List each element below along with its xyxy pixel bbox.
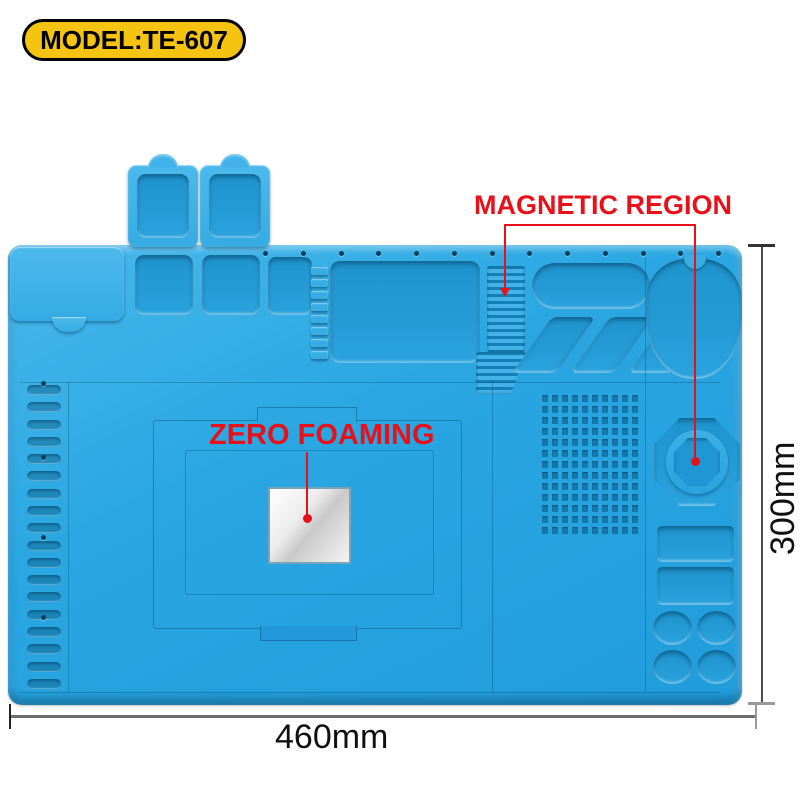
grid-dot (592, 505, 598, 512)
slot (27, 644, 61, 654)
grid-dot (542, 395, 548, 402)
grid-dot (572, 527, 578, 534)
grid-dot (552, 516, 558, 523)
mat-hole (41, 455, 46, 460)
grid-dot (572, 406, 578, 413)
slot (27, 575, 61, 585)
grid-dot (592, 450, 598, 457)
magnetic-bracket-line (505, 224, 696, 226)
hole (376, 251, 381, 256)
hole (527, 251, 532, 256)
grid-dot (562, 472, 568, 479)
grid-dot (562, 505, 568, 512)
magnetic-pointer-line (504, 224, 506, 288)
etch-line (68, 382, 69, 692)
grid-dot (562, 428, 568, 435)
mat-hole (41, 381, 46, 386)
grid-dot (542, 406, 548, 413)
lid-recess (209, 174, 261, 238)
grid-dot (612, 494, 618, 501)
flap-tab (52, 317, 86, 332)
grid-dot (562, 461, 568, 468)
grid-dot (632, 494, 638, 501)
comb-tooth (311, 327, 328, 335)
grid-dot (622, 395, 628, 402)
grid-dot (602, 395, 608, 402)
grid-dot (632, 516, 638, 523)
comb-tooth (311, 339, 328, 347)
magnetic-strip-lower (476, 352, 526, 394)
grid-dot (552, 505, 558, 512)
grid-dot (582, 483, 588, 490)
hole (641, 251, 646, 256)
hole (603, 251, 608, 256)
hole (414, 251, 419, 256)
magnetic-strip (487, 266, 525, 352)
grid-dot (582, 494, 588, 501)
rounded-tray (532, 263, 650, 309)
grid-dot (632, 406, 638, 413)
zero-foaming-pointer-dot (303, 514, 312, 523)
magnetic-pointer-dot (691, 457, 700, 466)
slot (27, 592, 61, 602)
grid-dot (572, 483, 578, 490)
hole (263, 251, 268, 256)
grid-dot (632, 450, 638, 457)
soldering-mat (8, 245, 742, 705)
grid-dot (632, 472, 638, 479)
width-dimension-tick-left (9, 704, 11, 729)
ic-pin-grid (542, 395, 642, 547)
square-well (135, 255, 193, 315)
grid-dot (542, 428, 548, 435)
grid-dot (592, 494, 598, 501)
grid-dot (632, 417, 638, 424)
grid-dot (582, 450, 588, 457)
grid-dot (582, 505, 588, 512)
grid-dot (602, 439, 608, 446)
grid-dot (572, 417, 578, 424)
clover-well (697, 611, 736, 645)
slot (27, 506, 61, 516)
grid-dot (632, 483, 638, 490)
grid-dot (562, 439, 568, 446)
grid-dot (552, 417, 558, 424)
grid-dot (552, 461, 558, 468)
grid-dot (542, 461, 548, 468)
slot (27, 662, 61, 672)
grid-dot (582, 527, 588, 534)
grid-dot (572, 472, 578, 479)
hole (716, 251, 721, 256)
slot (27, 471, 61, 481)
slot (27, 385, 61, 395)
grid-dot (562, 483, 568, 490)
grid-dot (552, 395, 558, 402)
grid-dot (592, 395, 598, 402)
grid-dot (562, 494, 568, 501)
grid-dot (632, 461, 638, 468)
comb-tooth (311, 315, 328, 323)
slot (27, 523, 61, 533)
grid-dot (582, 472, 588, 479)
grid-dot (632, 428, 638, 435)
etch-line (20, 382, 720, 383)
magnetic-pointer-line (694, 224, 696, 459)
top-holes-row (263, 249, 721, 257)
grid-dot (632, 395, 638, 402)
lid-tab (148, 154, 178, 168)
rect-well (657, 567, 734, 605)
hole (678, 251, 683, 256)
grid-dot (562, 450, 568, 457)
small-well (268, 257, 312, 315)
grid-dot (552, 450, 558, 457)
lid-recess (137, 174, 189, 238)
grid-dot (612, 450, 618, 457)
clover-well (653, 611, 692, 645)
grid-dot (572, 439, 578, 446)
grid-dot (552, 439, 558, 446)
height-dimension-tick-bottom (748, 702, 775, 705)
grid-dot (602, 483, 608, 490)
grid-dot (592, 527, 598, 534)
grid-dot (582, 439, 588, 446)
grid-dot (582, 428, 588, 435)
grid-dot (602, 461, 608, 468)
slot (27, 541, 61, 551)
slot (27, 627, 61, 637)
grid-dot (632, 439, 638, 446)
grid-dot (622, 417, 628, 424)
grid-dot (612, 439, 618, 446)
grid-dot (592, 483, 598, 490)
grid-dot (612, 527, 618, 534)
grid-dot (602, 505, 608, 512)
clover-well (653, 650, 692, 684)
width-dimension-label: 460mm (275, 718, 388, 757)
grid-dot (542, 483, 548, 490)
clover-well (697, 650, 736, 684)
comb-tooth (311, 267, 328, 275)
grid-dot (612, 406, 618, 413)
grid-dot (572, 461, 578, 468)
grid-dot (612, 461, 618, 468)
magnetic-pointer-arrow (500, 288, 510, 297)
height-dimension-tick-top (748, 244, 775, 247)
grid-dot (622, 406, 628, 413)
grid-dot (592, 439, 598, 446)
grid-dot (612, 516, 618, 523)
slot (27, 679, 61, 689)
grid-dot (562, 527, 568, 534)
grid-dot (632, 527, 638, 534)
grid-dot (612, 483, 618, 490)
zero-foaming-pointer-line (306, 452, 308, 516)
grid-dot (622, 494, 628, 501)
slot (27, 489, 61, 499)
lidded-box (200, 165, 270, 247)
grid-dot (622, 516, 628, 523)
grid-dot (542, 505, 548, 512)
grid-dot (622, 505, 628, 512)
grid-dot (602, 472, 608, 479)
rect-well (657, 526, 734, 562)
grid-dot (582, 461, 588, 468)
comb-tooth (311, 291, 328, 299)
lid-tab (220, 154, 250, 168)
model-badge-label: MODEL:TE-607 (40, 25, 228, 56)
grid-dot (552, 527, 558, 534)
grid-dot (622, 450, 628, 457)
comb-holder (311, 265, 328, 361)
grid-dot (542, 417, 548, 424)
magnetic-region-label: MAGNETIC REGION (474, 190, 732, 221)
grid-dot (582, 417, 588, 424)
etch-line (492, 382, 493, 692)
work-area-notch-bottom (260, 626, 357, 641)
grid-dot (572, 505, 578, 512)
grid-dot (622, 483, 628, 490)
square-well (202, 255, 260, 315)
grid-dot (602, 406, 608, 413)
grid-dot (572, 395, 578, 402)
grid-dot (542, 472, 548, 479)
slot (27, 402, 61, 412)
comb-tooth (311, 351, 328, 359)
slot (27, 558, 61, 568)
grid-dot (552, 406, 558, 413)
hole (565, 251, 570, 256)
grid-dot (612, 472, 618, 479)
zero-foaming-label: ZERO FOAMING (209, 419, 435, 452)
grid-dot (622, 527, 628, 534)
hole (452, 251, 457, 256)
grid-dot (602, 417, 608, 424)
grid-dot (582, 395, 588, 402)
grid-dot (612, 417, 618, 424)
width-dimension-tick-right (755, 704, 757, 729)
grid-dot (602, 428, 608, 435)
grid-dot (602, 494, 608, 501)
height-dimension-label: 300mm (764, 385, 800, 555)
grid-dot (542, 439, 548, 446)
grid-dot (542, 516, 548, 523)
model-badge: MODEL:TE-607 (22, 19, 246, 61)
clover-tray (653, 611, 739, 684)
grid-dot (552, 483, 558, 490)
grid-dot (552, 494, 558, 501)
grid-dot (592, 417, 598, 424)
grid-dot (612, 428, 618, 435)
grid-dot (552, 428, 558, 435)
grid-dot (572, 494, 578, 501)
grid-dot (622, 461, 628, 468)
grid-dot (562, 417, 568, 424)
slot (27, 437, 61, 447)
grid-dot (542, 450, 548, 457)
grid-dot (562, 516, 568, 523)
large-tray (330, 261, 480, 363)
slot (27, 420, 61, 430)
grid-dot (622, 428, 628, 435)
grid-dot (612, 395, 618, 402)
grid-dot (622, 472, 628, 479)
grid-dot (602, 450, 608, 457)
grid-dot (592, 428, 598, 435)
grid-dot (572, 516, 578, 523)
lidded-box (128, 165, 198, 247)
mat-hole (41, 535, 46, 540)
grid-dot (552, 472, 558, 479)
hole (339, 251, 344, 256)
grid-dot (582, 406, 588, 413)
grid-dot (602, 527, 608, 534)
height-dimension-line (761, 246, 763, 704)
grid-dot (622, 439, 628, 446)
grid-dot (562, 395, 568, 402)
flap-lid (10, 247, 124, 321)
etch-line (645, 257, 646, 693)
grid-dot (572, 428, 578, 435)
grid-dot (612, 505, 618, 512)
grid-dot (592, 406, 598, 413)
comb-tooth (311, 303, 328, 311)
grid-dot (632, 505, 638, 512)
grid-dot (592, 472, 598, 479)
grid-dot (592, 461, 598, 468)
grid-dot (592, 516, 598, 523)
grid-dot (572, 450, 578, 457)
etch-line (20, 692, 720, 693)
mirror-square (268, 487, 351, 564)
grid-dot (542, 527, 548, 534)
comb-tooth (311, 279, 328, 287)
mat-hole (41, 615, 46, 620)
grid-dot (602, 516, 608, 523)
hole (490, 251, 495, 256)
grid-dot (542, 494, 548, 501)
grid-dot (562, 406, 568, 413)
hole (301, 251, 306, 256)
grid-dot (582, 516, 588, 523)
